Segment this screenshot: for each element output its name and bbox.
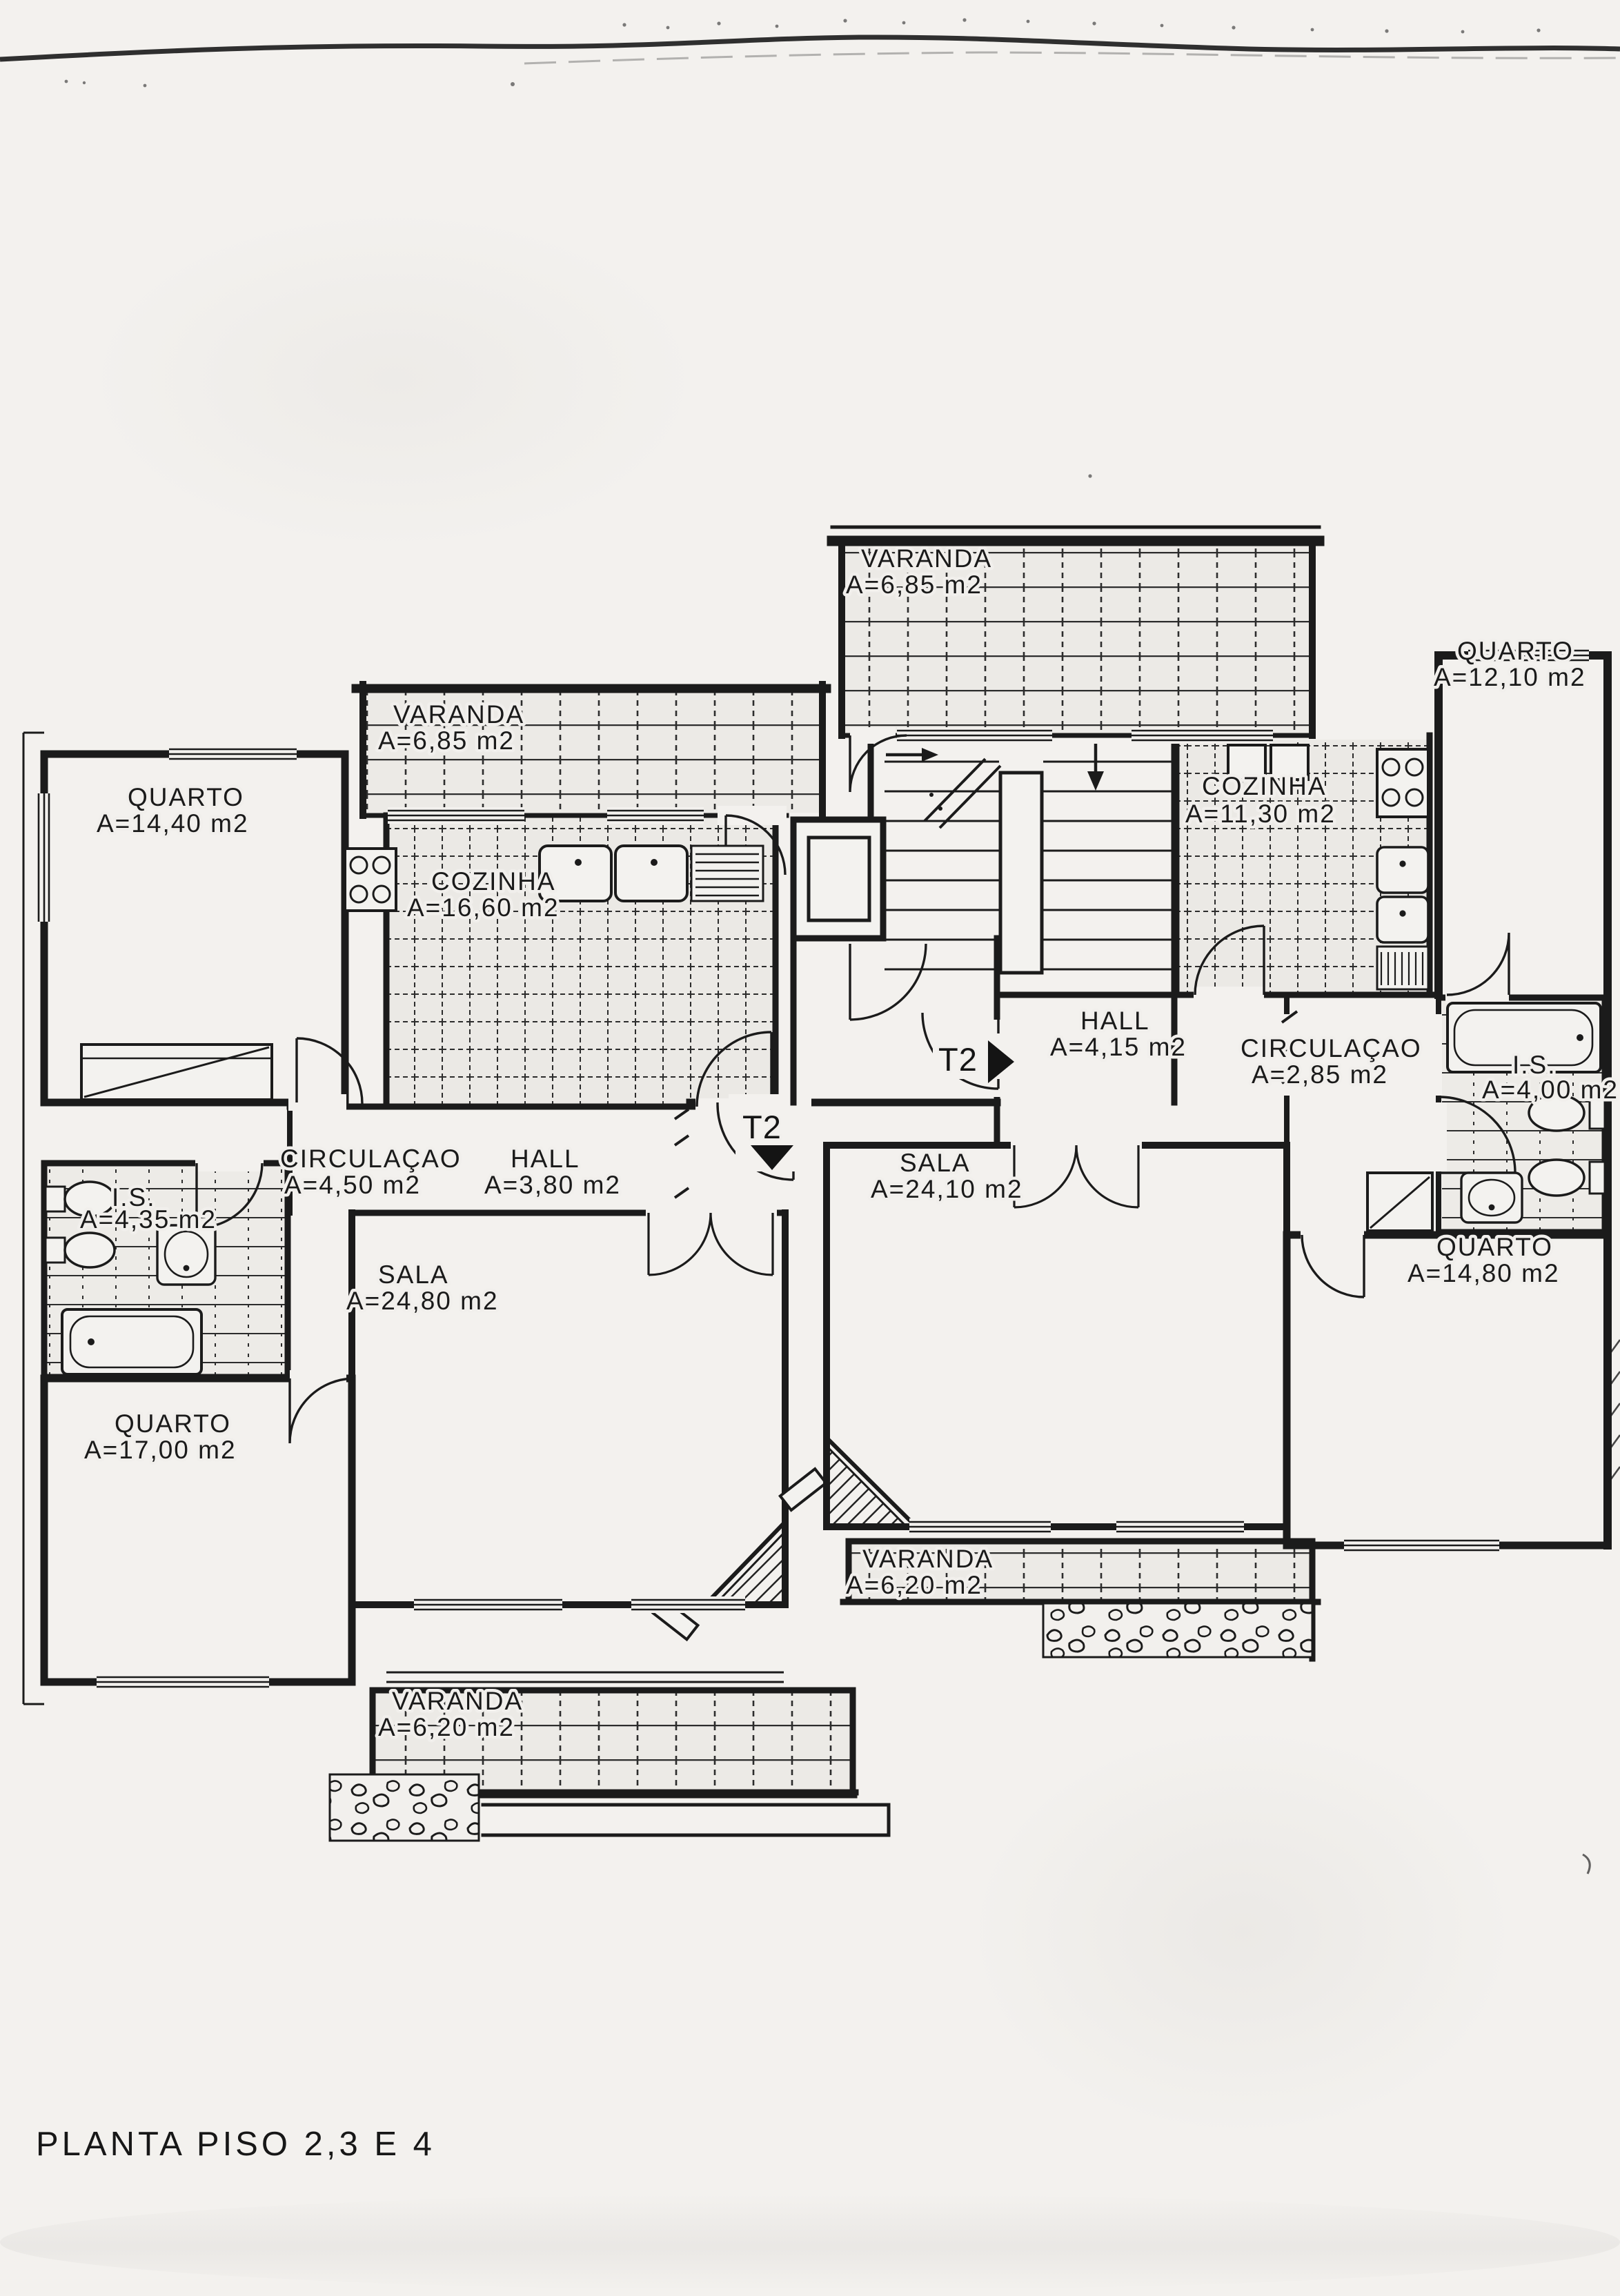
room-area-label: A=3,80 m2	[484, 1171, 621, 1199]
unit-left: VARANDA A=6,85 m2 QUARTO A=14,40 m2 COZI…	[23, 684, 889, 1841]
room-area-label: A=11,30 m2	[1185, 800, 1336, 828]
unit-right: VARANDA A=6,85 m2 COZINHA A=11,30 m2 QUA…	[780, 527, 1620, 1659]
closet-left	[81, 1045, 272, 1100]
room-area-label: A=4,15 m2	[1050, 1033, 1187, 1061]
arrow-right-icon	[922, 748, 938, 762]
room-name-label: QUARTO	[1457, 637, 1574, 665]
room-area-label: A=14,40 m2	[97, 809, 249, 838]
t2-marker-right: T2	[933, 1033, 1021, 1083]
room-area-label: A=6,20 m2	[846, 1571, 982, 1599]
room-name-label: VARANDA	[392, 1687, 523, 1715]
room-name-label: CIRCULAÇAO	[1241, 1034, 1422, 1062]
room-name-label: I.S.	[1512, 1051, 1557, 1079]
stair-core	[793, 737, 1174, 1145]
room-area-label: A=6,85 m2	[378, 726, 515, 755]
floor-plan-canvas: VARANDA A=6,85 m2 QUARTO A=14,40 m2 COZI…	[0, 0, 1620, 2296]
t2-marker-left: T2	[735, 1105, 807, 1171]
t2-marker-label: T2	[938, 1041, 978, 1078]
room-area-label: A=14,80 m2	[1407, 1259, 1560, 1287]
room-area-label: A=24,80 m2	[346, 1287, 499, 1315]
closet-right	[1367, 1173, 1432, 1231]
fireplace-sala-right	[780, 1439, 916, 1527]
room-name-label: CIRCULAÇAO	[280, 1145, 462, 1173]
plan-title: PLANTA PISO 2,3 E 4	[36, 2126, 435, 2163]
room-name-label: QUARTO	[115, 1409, 231, 1438]
room-area-label: A=16,60 m2	[407, 893, 560, 922]
planter-bottom-center	[1043, 1603, 1312, 1657]
room-area-label: A=4,00 m2	[1482, 1076, 1619, 1104]
room-name-label: QUARTO	[128, 783, 244, 811]
planter-bottom-left	[330, 1774, 479, 1841]
room-name-label: COZINHA	[1202, 772, 1327, 800]
elevator-shaft	[793, 820, 883, 938]
room-area-label: A=6,85 m2	[846, 571, 982, 599]
room-name-label: QUARTO	[1436, 1233, 1553, 1261]
scanned-floor-plan-page: { "title": "PLANTA PISO 2,3 E 4", "color…	[0, 0, 1620, 2296]
landing-door	[850, 944, 926, 1020]
room-name-label: HALL	[1080, 1007, 1150, 1035]
room-area-label: A=12,10 m2	[1434, 663, 1586, 691]
room-area-label: A=4,35 m2	[80, 1205, 217, 1234]
room-name-label: COZINHA	[431, 867, 556, 895]
room-name-label: HALL	[511, 1145, 580, 1173]
stair-treads	[885, 759, 1172, 973]
room-name-label: SALA	[378, 1260, 449, 1289]
t2-marker-label: T2	[742, 1109, 782, 1145]
room-area-label: A=2,85 m2	[1252, 1060, 1388, 1089]
room-area-label: A=4,50 m2	[284, 1171, 421, 1199]
arrow-down-icon	[1087, 771, 1104, 791]
room-name-label: SALA	[900, 1149, 971, 1177]
room-area-label: A=6,20 m2	[378, 1713, 515, 1741]
room-area-label: A=17,00 m2	[84, 1436, 237, 1464]
room-area-label: A=24,10 m2	[871, 1175, 1023, 1203]
stair-direction-arrows	[886, 744, 1104, 791]
room-name-label: VARANDA	[861, 544, 992, 573]
room-name-label: VARANDA	[393, 700, 524, 729]
room-name-label: VARANDA	[862, 1545, 994, 1573]
fireplace-sala-left	[653, 1523, 784, 1639]
